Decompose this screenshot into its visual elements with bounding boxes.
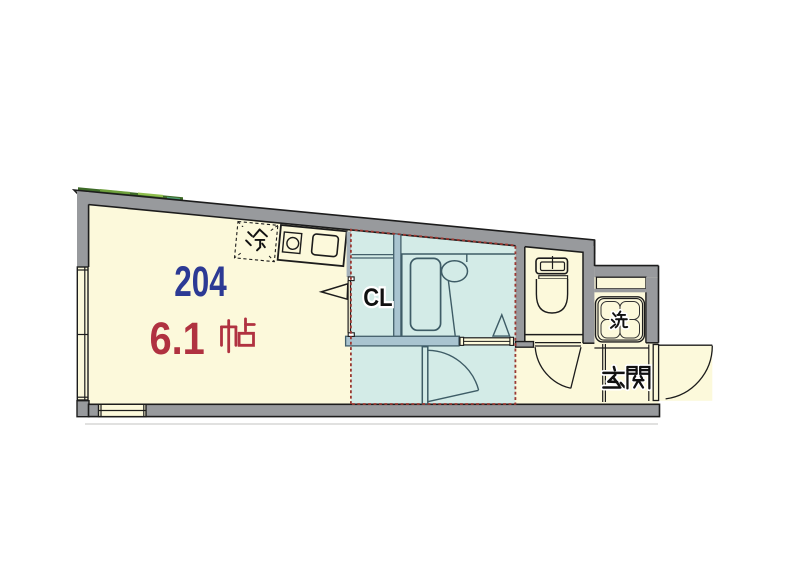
svg-text:6.1: 6.1 xyxy=(149,315,204,365)
svg-text:CL: CL xyxy=(363,284,392,312)
svg-text:204: 204 xyxy=(174,257,227,305)
